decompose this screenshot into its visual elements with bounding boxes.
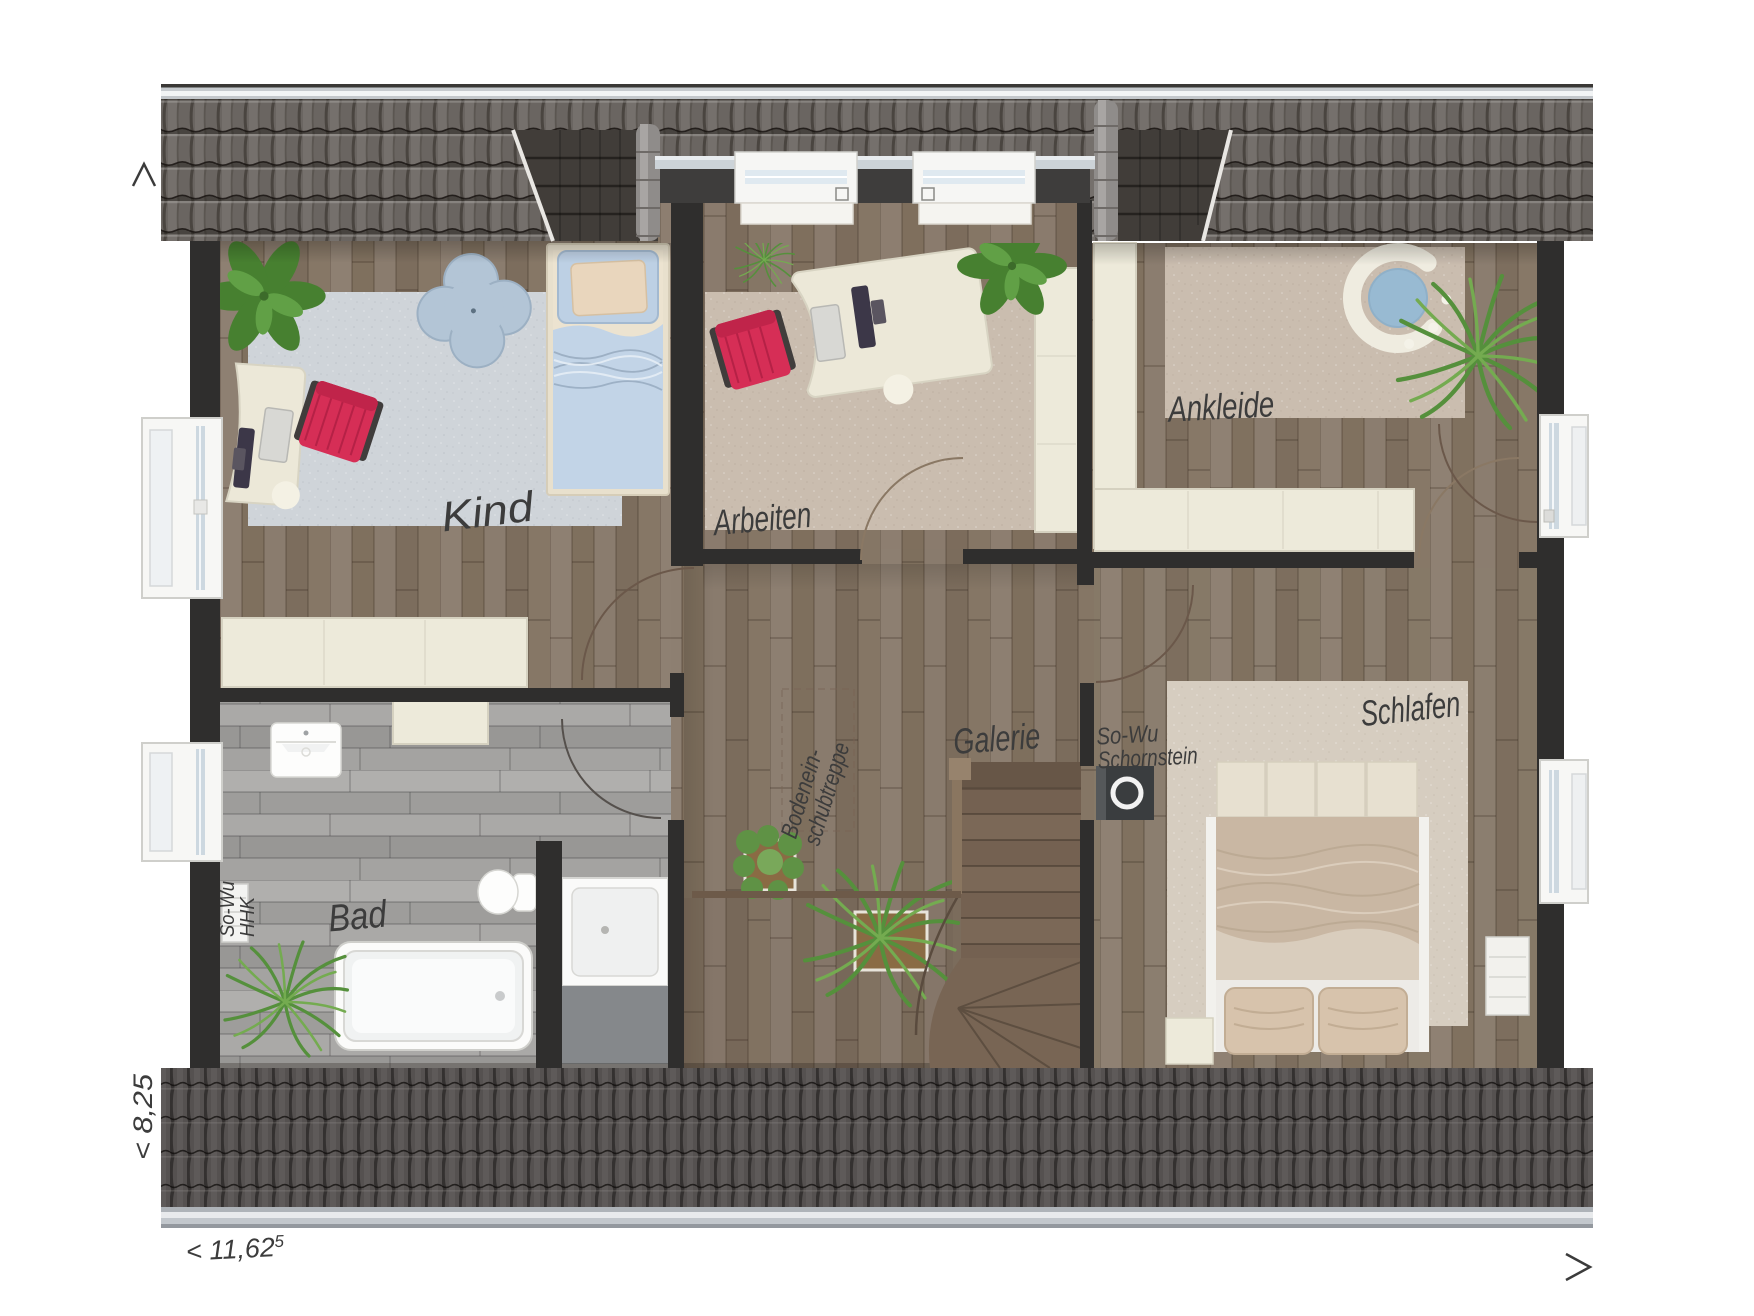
svg-text:Galerie: Galerie xyxy=(952,715,1042,762)
svg-text:< 8,25: < 8,25 xyxy=(128,1073,158,1160)
svg-text:Schornstein: Schornstein xyxy=(1097,742,1198,774)
svg-text:HHK: HHK xyxy=(237,895,259,937)
svg-text:So-Wu: So-Wu xyxy=(217,881,239,937)
svg-text:Arbeiten: Arbeiten xyxy=(710,494,813,544)
svg-text:< 11,625: < 11,625 xyxy=(185,1232,285,1267)
svg-text:Ankleide: Ankleide xyxy=(1166,383,1276,430)
svg-text:Bad: Bad xyxy=(327,893,390,940)
